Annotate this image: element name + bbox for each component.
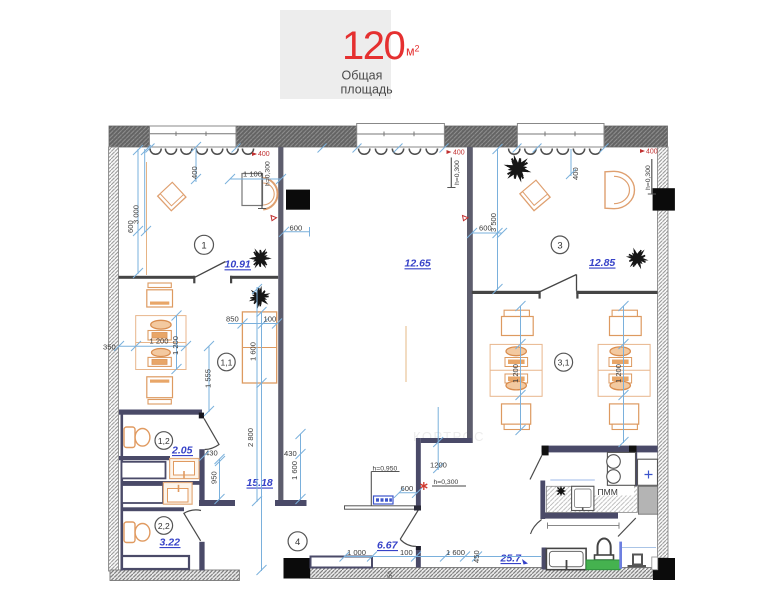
- svg-text:2.05: 2.05: [171, 444, 193, 456]
- svg-text:25.7: 25.7: [500, 552, 523, 564]
- svg-text:400: 400: [453, 150, 465, 157]
- svg-text:h=0,300: h=0,300: [454, 160, 461, 185]
- svg-text:1,2: 1,2: [158, 436, 170, 446]
- svg-text:1 000: 1 000: [347, 548, 366, 557]
- svg-text:2 800: 2 800: [246, 428, 255, 447]
- svg-text:1 600: 1 600: [290, 461, 299, 480]
- svg-text:1 200: 1 200: [150, 337, 169, 346]
- svg-text:3: 3: [557, 240, 562, 251]
- svg-text:50: 50: [388, 571, 394, 578]
- svg-text:450: 450: [472, 550, 481, 563]
- svg-text:площадь: площадь: [341, 83, 393, 97]
- svg-text:1 200: 1 200: [171, 336, 180, 355]
- svg-text:100: 100: [264, 315, 277, 324]
- svg-text:2: 2: [415, 44, 420, 54]
- svg-text:3 500: 3 500: [489, 213, 498, 232]
- svg-text:400: 400: [190, 166, 199, 179]
- svg-text:3,1: 3,1: [558, 358, 570, 368]
- svg-text:12.85: 12.85: [589, 257, 615, 269]
- svg-text:950: 950: [210, 471, 219, 484]
- svg-text:600: 600: [401, 484, 414, 493]
- svg-text:ПММ: ПММ: [598, 487, 618, 497]
- svg-text:2,2: 2,2: [158, 521, 170, 531]
- svg-text:h=0,300: h=0,300: [645, 165, 652, 190]
- svg-text:430: 430: [284, 449, 297, 458]
- svg-text:10.91: 10.91: [225, 259, 251, 271]
- svg-text:h=0,300: h=0,300: [265, 161, 272, 186]
- svg-text:Общая: Общая: [342, 69, 383, 83]
- svg-text:600: 600: [290, 224, 303, 233]
- svg-text:12.65: 12.65: [405, 258, 431, 270]
- svg-text:15.18: 15.18: [247, 477, 273, 489]
- svg-text:м: м: [406, 45, 415, 59]
- svg-text:4: 4: [295, 537, 300, 548]
- svg-text:6.67: 6.67: [377, 539, 399, 551]
- svg-text:100: 100: [400, 548, 413, 557]
- svg-text:1 600: 1 600: [249, 342, 258, 361]
- svg-text:120: 120: [342, 24, 404, 68]
- svg-text:850: 850: [226, 315, 239, 324]
- svg-text:1 200: 1 200: [614, 364, 623, 383]
- svg-text:3.22: 3.22: [160, 536, 181, 548]
- svg-text:1 600: 1 600: [446, 548, 465, 557]
- svg-text:1 100: 1 100: [243, 170, 262, 179]
- svg-text:1200: 1200: [430, 460, 447, 469]
- svg-text:600: 600: [126, 220, 135, 233]
- svg-text:1 200: 1 200: [511, 364, 520, 383]
- svg-text:350: 350: [103, 343, 116, 352]
- svg-text:1 555: 1 555: [204, 369, 213, 388]
- svg-text:400: 400: [646, 149, 658, 156]
- svg-text:1: 1: [201, 240, 206, 251]
- svg-text:h=0,950: h=0,950: [373, 465, 398, 472]
- svg-text:400: 400: [258, 151, 270, 158]
- svg-text:h=0,300: h=0,300: [434, 479, 459, 486]
- svg-text:1,1: 1,1: [220, 357, 232, 367]
